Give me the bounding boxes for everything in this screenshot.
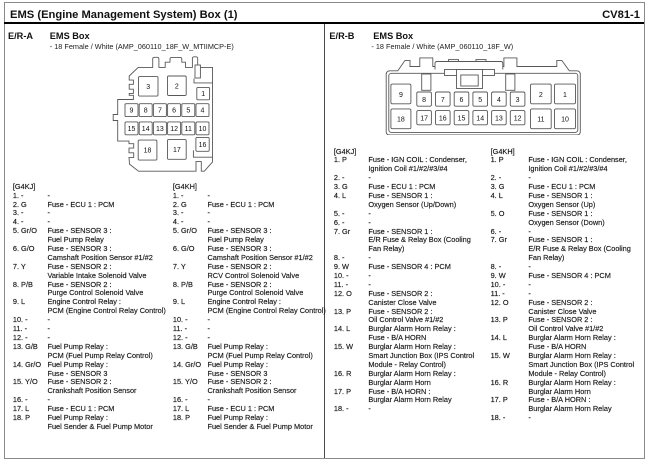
svg-text:10: 10 — [561, 117, 569, 124]
svg-text:5: 5 — [186, 108, 190, 115]
svg-text:18: 18 — [397, 117, 405, 124]
svg-text:6: 6 — [460, 97, 464, 104]
svg-text:11: 11 — [537, 117, 544, 124]
svg-text:17: 17 — [173, 147, 181, 154]
svg-text:8: 8 — [144, 108, 148, 115]
svg-text:15: 15 — [458, 116, 466, 123]
svg-text:1: 1 — [201, 91, 205, 98]
svg-text:11: 11 — [185, 126, 192, 133]
svg-text:15: 15 — [128, 126, 136, 133]
svg-text:12: 12 — [170, 126, 178, 133]
svg-text:13: 13 — [495, 116, 503, 123]
svg-text:12: 12 — [514, 116, 522, 123]
svg-text:7: 7 — [158, 108, 162, 115]
svg-text:16: 16 — [439, 116, 447, 123]
svg-text:6: 6 — [172, 108, 176, 115]
svg-text:14: 14 — [476, 116, 484, 123]
svg-text:16: 16 — [199, 142, 207, 149]
svg-text:17: 17 — [420, 116, 428, 123]
svg-text:2: 2 — [175, 83, 179, 90]
svg-text:7: 7 — [441, 97, 445, 104]
svg-text:9: 9 — [399, 92, 403, 99]
svg-text:8: 8 — [422, 97, 426, 104]
svg-text:3: 3 — [146, 84, 150, 91]
svg-text:3: 3 — [516, 97, 520, 104]
svg-text:13: 13 — [156, 126, 164, 133]
svg-text:5: 5 — [478, 97, 482, 104]
svg-text:14: 14 — [142, 126, 150, 133]
svg-text:9: 9 — [130, 108, 134, 115]
svg-text:2: 2 — [539, 92, 543, 99]
svg-text:1: 1 — [563, 92, 567, 99]
svg-text:4: 4 — [201, 108, 205, 115]
svg-text:18: 18 — [144, 148, 152, 155]
svg-text:4: 4 — [497, 97, 501, 104]
svg-text:10: 10 — [199, 126, 207, 133]
